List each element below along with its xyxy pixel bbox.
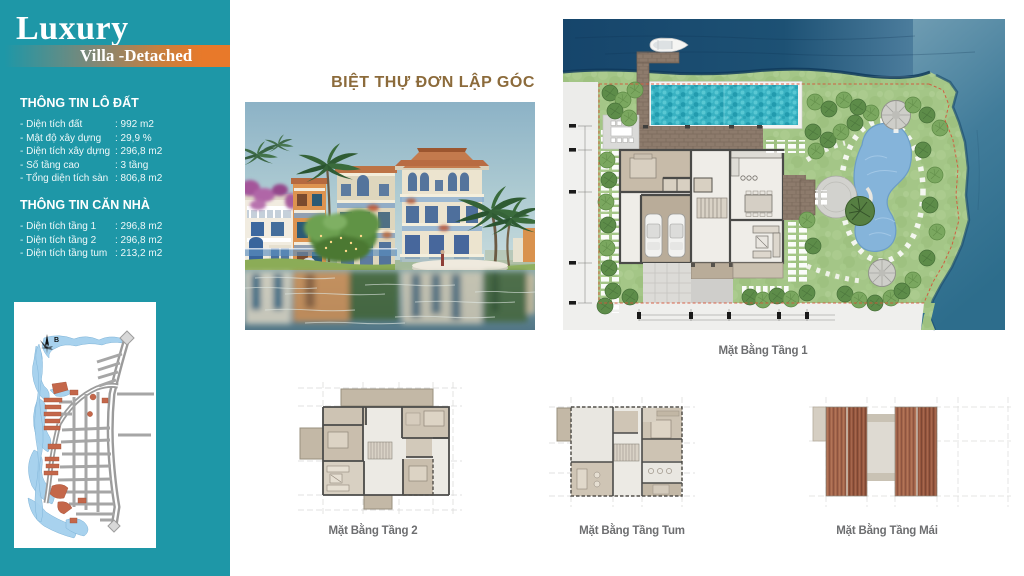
svg-text:B: B [54,337,59,344]
